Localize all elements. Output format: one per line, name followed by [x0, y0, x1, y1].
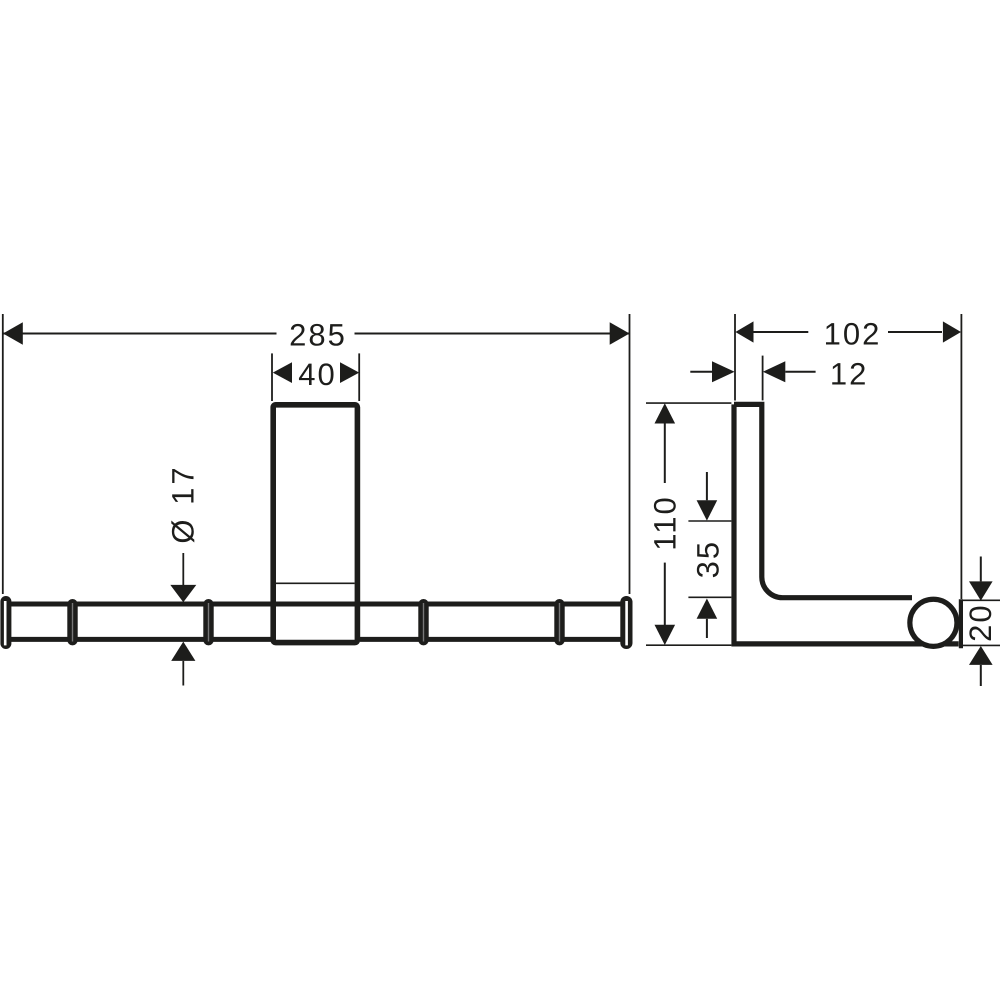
svg-text:12: 12: [830, 356, 868, 391]
svg-text:285: 285: [289, 318, 347, 353]
svg-text:35: 35: [691, 540, 726, 578]
svg-text:40: 40: [298, 357, 336, 392]
svg-text:102: 102: [824, 316, 882, 351]
svg-text:Ø 17: Ø 17: [166, 464, 201, 543]
svg-text:20: 20: [963, 603, 998, 641]
svg-text:110: 110: [648, 495, 683, 550]
